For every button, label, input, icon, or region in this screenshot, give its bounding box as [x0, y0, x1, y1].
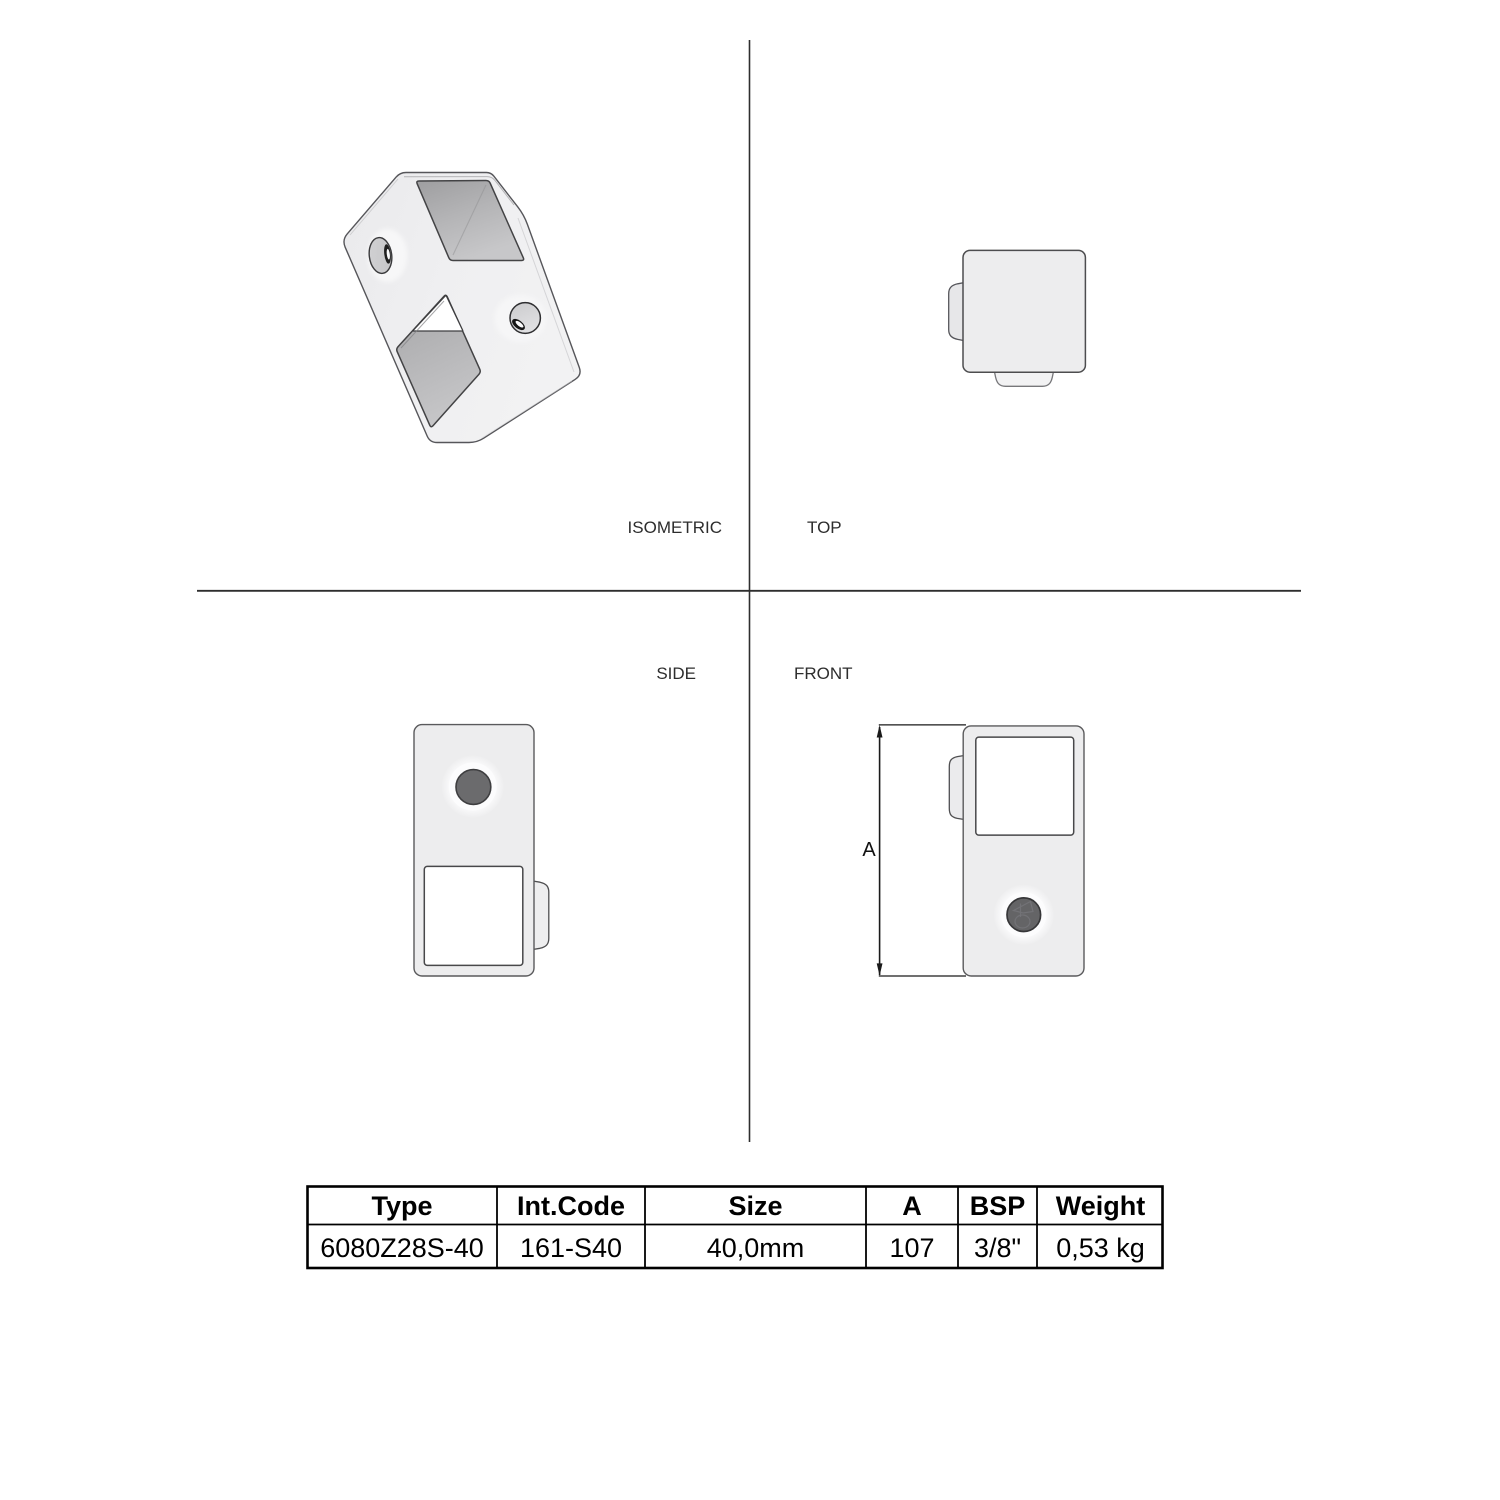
svg-text:A: A — [902, 1191, 922, 1221]
svg-text:Int.Code: Int.Code — [517, 1191, 625, 1221]
svg-text:107: 107 — [889, 1233, 934, 1263]
svg-text:ISOMETRIC: ISOMETRIC — [628, 518, 722, 537]
svg-text:3/8": 3/8" — [974, 1233, 1021, 1263]
svg-text:0,53 kg: 0,53 kg — [1056, 1233, 1145, 1263]
svg-text:SIDE: SIDE — [656, 664, 696, 683]
svg-text:FRONT: FRONT — [794, 664, 853, 683]
svg-text:BSP: BSP — [970, 1191, 1026, 1221]
svg-text:40,0mm: 40,0mm — [707, 1233, 805, 1263]
svg-text:Size: Size — [728, 1191, 782, 1221]
svg-text:6080Z28S-40: 6080Z28S-40 — [320, 1233, 484, 1263]
svg-text:TOP: TOP — [807, 518, 842, 537]
svg-text:Type: Type — [371, 1191, 432, 1221]
svg-text:161-S40: 161-S40 — [520, 1233, 622, 1263]
svg-text:Weight: Weight — [1056, 1191, 1146, 1221]
svg-text:A: A — [862, 839, 876, 861]
